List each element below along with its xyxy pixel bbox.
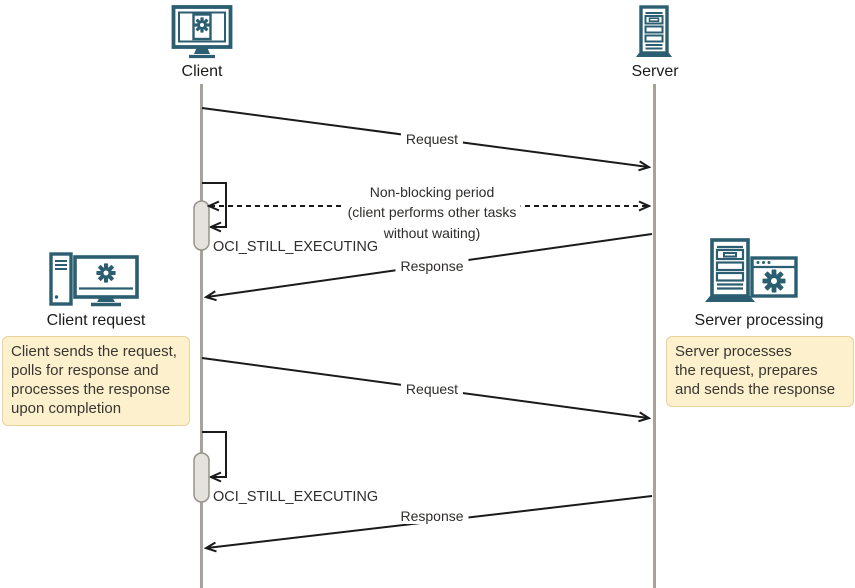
activation-bar-2 bbox=[194, 453, 209, 502]
response-label-1: Response bbox=[395, 258, 468, 274]
request-label-2: Request bbox=[401, 381, 463, 397]
non-blocking-line-1: Non-blocking period bbox=[348, 182, 517, 202]
response-label-2: Response bbox=[395, 508, 468, 524]
client-note-title: Client request bbox=[47, 312, 146, 330]
server-note-line-2: the request, prepares bbox=[675, 362, 845, 381]
server-note: Server processes the request, prepares a… bbox=[666, 336, 854, 407]
non-blocking-label: Non-blocking period (client performs oth… bbox=[344, 182, 521, 243]
server-actor-label: Server bbox=[631, 63, 678, 81]
server-note-title: Server processing bbox=[695, 312, 824, 330]
still-executing-label-2: OCI_STILL_EXECUTING bbox=[213, 489, 378, 505]
sequence-diagram: Client Server Request Non-blocking perio… bbox=[0, 0, 855, 588]
still-executing-label-1: OCI_STILL_EXECUTING bbox=[213, 239, 378, 255]
server-note-line-1: Server processes bbox=[675, 343, 845, 362]
client-note-line-3: processes the response bbox=[11, 381, 181, 400]
non-blocking-line-2: (client performs other tasks bbox=[348, 202, 517, 222]
client-note-line-1: Client sends the request, bbox=[11, 343, 181, 362]
desktop-tower-monitor-gear-icon bbox=[48, 252, 140, 312]
activation-bar-1 bbox=[194, 201, 209, 250]
client-note-line-4: upon completion bbox=[11, 400, 181, 419]
server-rack-icon bbox=[634, 5, 674, 61]
client-actor-label: Client bbox=[182, 63, 223, 81]
server-note-line-3: and sends the response bbox=[675, 381, 845, 400]
client-note-line-2: polls for response and bbox=[11, 362, 181, 381]
client-note: Client sends the request, polls for resp… bbox=[2, 336, 190, 426]
request-label-1: Request bbox=[401, 131, 463, 147]
server-rack-app-gear-icon bbox=[688, 238, 800, 310]
monitor-gear-icon bbox=[171, 5, 233, 61]
